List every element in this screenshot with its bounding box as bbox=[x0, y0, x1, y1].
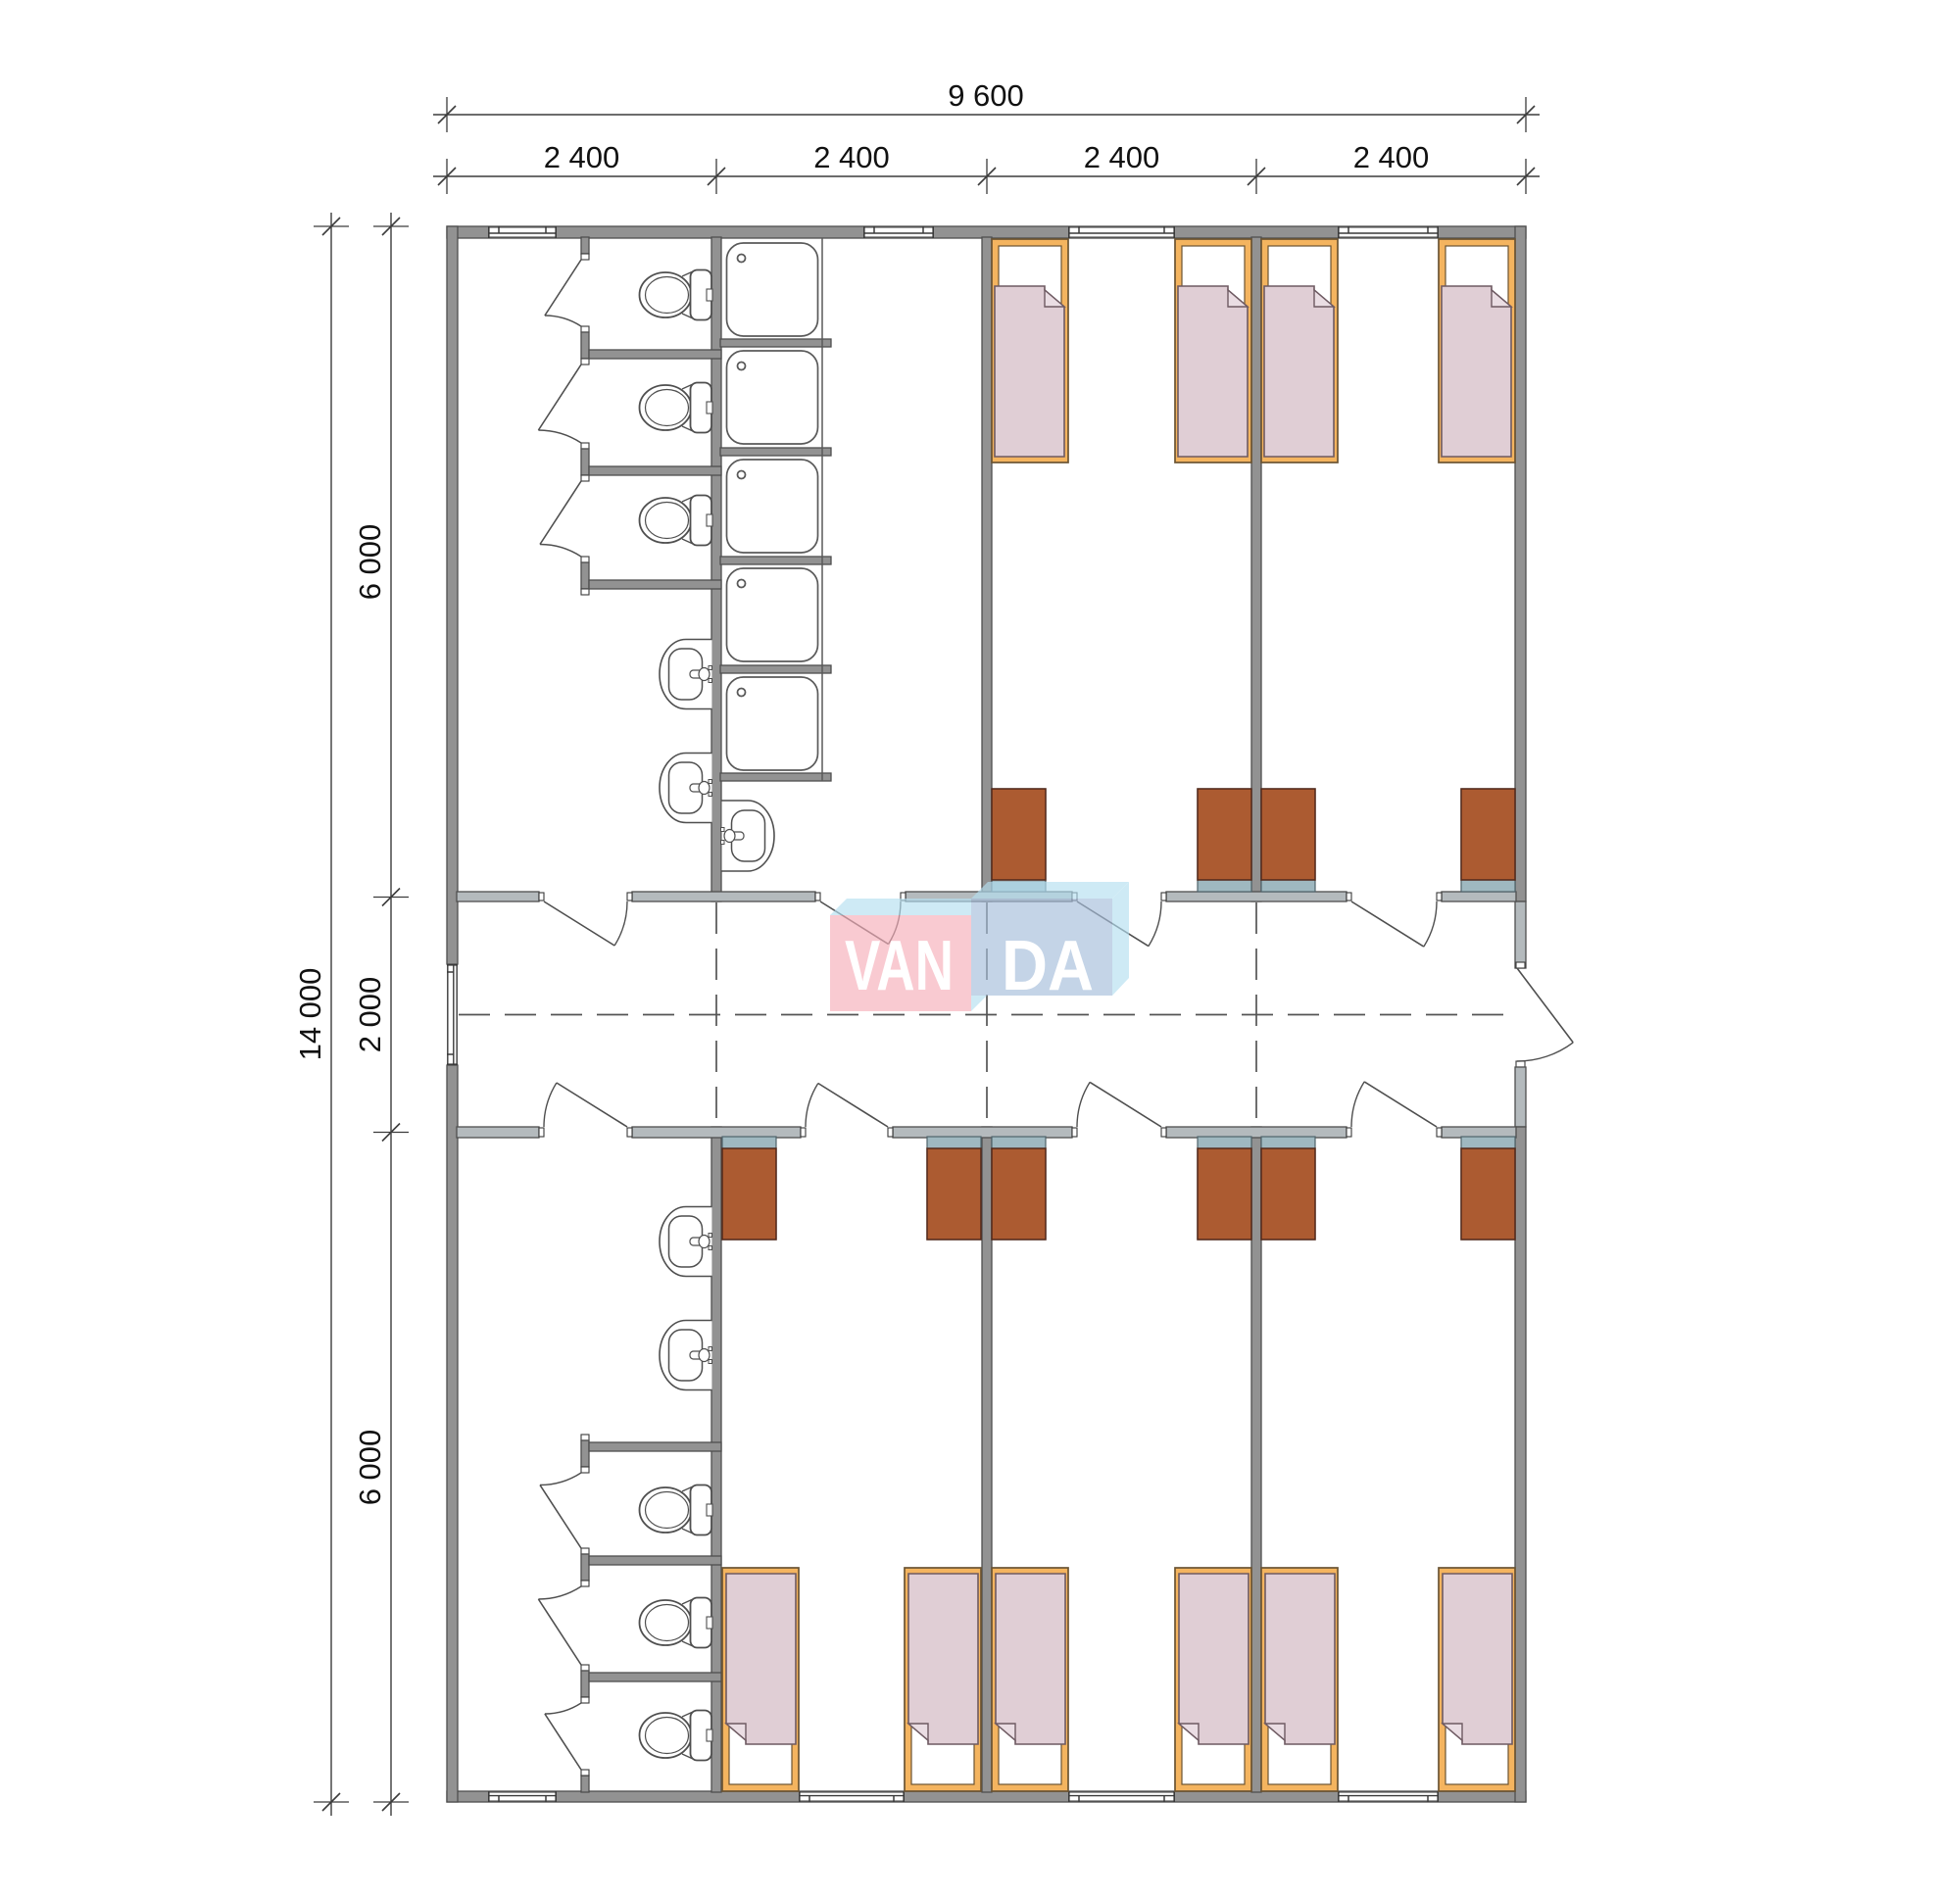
svg-text:DA: DA bbox=[1002, 927, 1094, 1005]
svg-text:9 600: 9 600 bbox=[948, 78, 1024, 113]
svg-text:VAN: VAN bbox=[845, 927, 954, 1005]
svg-text:2 400: 2 400 bbox=[1353, 140, 1430, 174]
svg-text:2 400: 2 400 bbox=[813, 140, 890, 174]
svg-text:2 400: 2 400 bbox=[544, 140, 620, 174]
svg-text:14 000: 14 000 bbox=[293, 968, 327, 1061]
svg-text:6 000: 6 000 bbox=[353, 524, 387, 601]
svg-text:6 000: 6 000 bbox=[353, 1430, 387, 1506]
svg-text:2 000: 2 000 bbox=[353, 977, 387, 1053]
svg-text:2 400: 2 400 bbox=[1084, 140, 1160, 174]
